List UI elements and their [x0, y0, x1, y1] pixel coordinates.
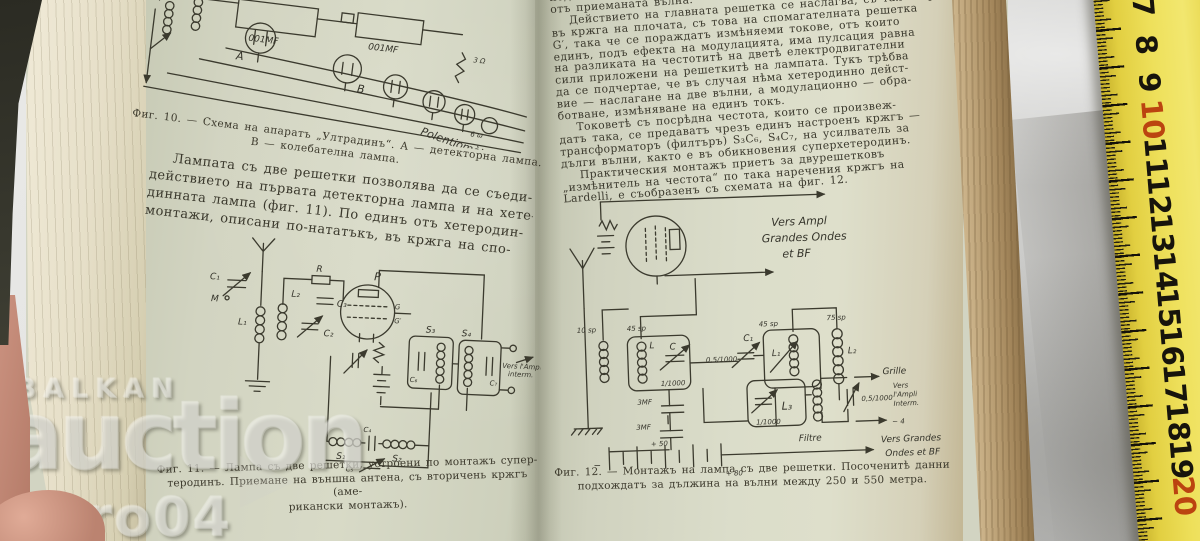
fig10-label-l: L) [154, 0, 164, 3]
fig12-label-f1b: 1/1000 [756, 418, 781, 427]
fig12-label-l3: L₃ [781, 399, 793, 412]
fig11-label-l2: L₂ [291, 290, 300, 300]
fig11-label-c6: C₆ [409, 376, 417, 384]
fig12-label-l1: L₁ [772, 349, 781, 359]
fig11-label-c1: C₁ [210, 272, 221, 282]
fig10-label-b: B [356, 82, 365, 96]
fig12-label-f05b: 0,5/1000 [861, 394, 893, 403]
fig12-label-sp10: 10 sp [577, 326, 597, 335]
fig11-caption: Фиг. 11. — Лампа съ две решетки, устроен… [150, 454, 545, 518]
fig12-label-mf3b: 3MF [636, 423, 652, 432]
fig11-label-c4: C₄ [363, 426, 371, 434]
fig12-label-c1: C₁ [743, 334, 754, 344]
fig10-label-a: A [234, 49, 244, 63]
fig12-label-vb3: Interm. [893, 399, 919, 408]
photo-scene: L) 001MF 001MF A B 3 Ω 6 ω Polentiomètre… [0, 0, 1200, 541]
fig12-label-l2: L₂ [848, 346, 857, 356]
fig12-schematic: Vers Ampl Grandes Ondes et BF 10 sp 45 s… [542, 178, 964, 488]
fig12-label-grille: Grille [882, 366, 907, 377]
fig11-label-c3: C₃ [337, 300, 348, 310]
fig10-label-r6: 6 ω [470, 130, 484, 139]
fig12-label-vb2: l'Ampli [893, 390, 917, 399]
fig10-label-r3: 3 Ω [473, 56, 487, 65]
fig12-label-vers3: et BF [782, 247, 812, 261]
fig10-label-mf2: 001MF [368, 42, 400, 56]
fig11-label-r: R [316, 265, 323, 275]
fig12-label-mf3a: 3MF [637, 398, 653, 407]
fig12-label-sp45a: 45 sp [627, 324, 647, 333]
fig12-label-sp75: 75 sp [826, 313, 846, 322]
fig12-label-sp45b: 45 sp [759, 320, 779, 329]
fig11-label-p: P [374, 270, 382, 283]
fig11-label-out2: interm. [508, 370, 534, 379]
fig12-label-vg1: Vers Grandes [881, 433, 942, 445]
fig12-label-vers2: Grandes Ondes [762, 229, 848, 245]
fig11-label-l1: L₁ [238, 317, 247, 327]
fig12-label-plus50: + 50 [651, 440, 669, 449]
fig12-label-vg2: Ondes et BF [885, 447, 941, 459]
fig12-label-c: C [669, 342, 676, 352]
fig12-label-vb1: Vers [893, 381, 909, 390]
text-line: 20 [1164, 472, 1200, 521]
fig11-label-s4: S₄ [462, 329, 472, 339]
fig11-label-g: G [395, 303, 401, 311]
fig12-label-vers1: Vers Ampl [771, 214, 827, 229]
fig12-label-filtre: Filtre [799, 433, 823, 444]
fig11-label-c7: C₇ [489, 379, 497, 387]
fig11-label-m: M [211, 294, 219, 304]
fig11-label-s3: S₃ [426, 326, 436, 336]
fig12-label-l: L [649, 341, 654, 351]
fig12-label-f05a: 0,5/1000 [706, 355, 738, 364]
fig11-label-gprime: G′ [394, 317, 402, 325]
fig12-label-minus4: − 4 [892, 417, 905, 425]
fig11-label-c2: C₂ [323, 329, 334, 339]
fig12-label-f1: 1/1000 [661, 379, 686, 388]
